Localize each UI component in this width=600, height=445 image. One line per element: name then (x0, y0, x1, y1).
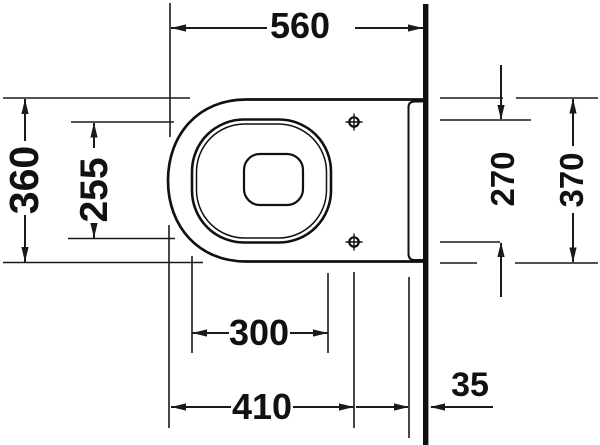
drain-opening (244, 154, 303, 205)
dim-right-outer-label: 370 (553, 152, 590, 207)
dim-left-outer-label: 360 (1, 146, 47, 214)
dim-right-inner-label: 270 (484, 151, 521, 206)
dim-bottom-inner-label: 300 (229, 312, 289, 353)
dim-right-outer-arrowhead-up (569, 99, 576, 114)
dim-top-arrowhead-right (408, 24, 423, 31)
dim-left-outer-arrowhead-up (21, 99, 28, 114)
dim-right-inner-arrowhead-down (497, 105, 504, 120)
dimension-bottom-inner: 300 (192, 312, 328, 353)
dim-left-inner-arrowhead-up (90, 123, 97, 138)
dim-bottom-inner-arrowhead-left (192, 329, 207, 336)
dim-top-arrowhead-left (171, 24, 186, 31)
dim-left-inner-label: 255 (73, 157, 116, 222)
toilet-dimension-drawing: 560 360 255 270 370 300 (0, 0, 600, 445)
dim-left-outer-arrowhead-down (21, 247, 28, 262)
dim-top-label: 560 (270, 5, 330, 46)
dimension-bottom-middle: 410 (171, 386, 354, 427)
dim-bottom-inner-arrowhead-right (313, 329, 328, 336)
dim-bottom-middle-label: 410 (232, 386, 292, 427)
dimension-right-outer: 370 (553, 99, 590, 263)
toilet-outline (168, 100, 423, 262)
technical-drawing-canvas: 560 360 255 270 370 300 (0, 0, 600, 445)
dimension-left-outer: 360 (1, 99, 47, 262)
dim-right-outer-arrowhead-down (569, 248, 576, 263)
back-plate (409, 102, 424, 261)
dim-bottom-middle-arrowhead-right (339, 403, 354, 410)
dim-right-inner-arrowhead-up (497, 242, 504, 257)
dim-bottom-right-label: 35 (451, 366, 489, 404)
dimension-left-inner: 255 (73, 123, 116, 239)
dim-bottom-right-arrowhead-in-left (394, 403, 409, 410)
dim-bottom-right-arrowhead-in-right (430, 403, 445, 410)
dim-left-inner-arrowhead-down (90, 223, 97, 238)
dim-bottom-middle-arrowhead-left (171, 403, 186, 410)
dimension-top: 560 (171, 5, 423, 46)
